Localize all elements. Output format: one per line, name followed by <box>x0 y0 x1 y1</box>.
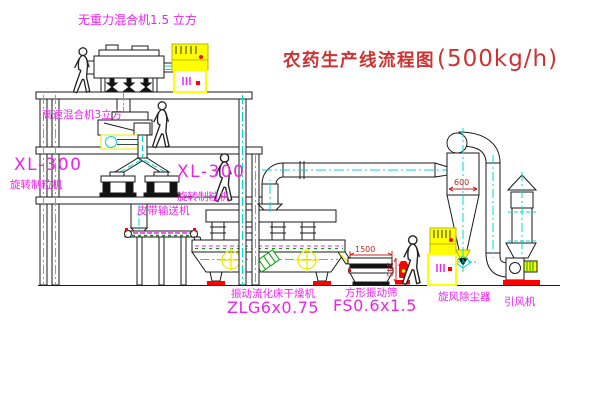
title-capacity: (500kg/h) <box>437 46 558 72</box>
label-belt-conveyor: 皮带输送机 <box>137 206 190 217</box>
label-granulator-left-model: XL-300 <box>14 157 82 174</box>
label-cyclone: 旋风除尘器 <box>438 292 491 303</box>
label-dryer-model: ZLG6x0.75 <box>227 300 319 316</box>
dim-text-cyclone: 600 <box>454 179 469 187</box>
label-granulator-right-model: XL-300 <box>177 164 245 181</box>
control-cabinet-lower <box>428 228 456 285</box>
label-sieve-model: FS0.6x1.5 <box>333 298 417 314</box>
indicator-light <box>449 238 453 242</box>
fluid-bed-dryer <box>192 210 352 286</box>
dim-text-sieve-height: 340 <box>385 262 393 277</box>
dimension-340 <box>394 258 396 283</box>
process-flow-diagram: 农药生产线流程图 (500kg/h) 无重力混合机1.5 立方 高速混合机3立方… <box>0 0 600 403</box>
granulator-left <box>100 172 136 197</box>
person-figure <box>74 48 90 93</box>
label-high-speed-mixer: 高速混合机3立方 <box>42 110 122 121</box>
label-fan: 引风机 <box>504 297 536 308</box>
exhaust-duct <box>258 161 452 212</box>
indicator-light <box>199 55 203 59</box>
label-zero-gravity-mixer: 无重力混合机1.5 立方 <box>78 14 197 26</box>
title-text: 农药生产线流程图 <box>283 47 435 72</box>
person-figure <box>403 236 420 284</box>
cyclone-outlet-pipe <box>486 155 508 277</box>
induced-draft-fan <box>503 258 540 285</box>
label-granulator-left-name: 旋转制粒机 <box>10 180 63 191</box>
dim-text-sieve-length: 1500 <box>355 246 375 254</box>
control-cabinet-upper <box>172 44 208 92</box>
person-figure <box>153 102 169 148</box>
diagram-title: 农药生产线流程图 (500kg/h) <box>283 46 558 72</box>
granulator-right <box>144 172 180 197</box>
label-granulator-right-name: 旋转制粒机 <box>177 192 230 203</box>
